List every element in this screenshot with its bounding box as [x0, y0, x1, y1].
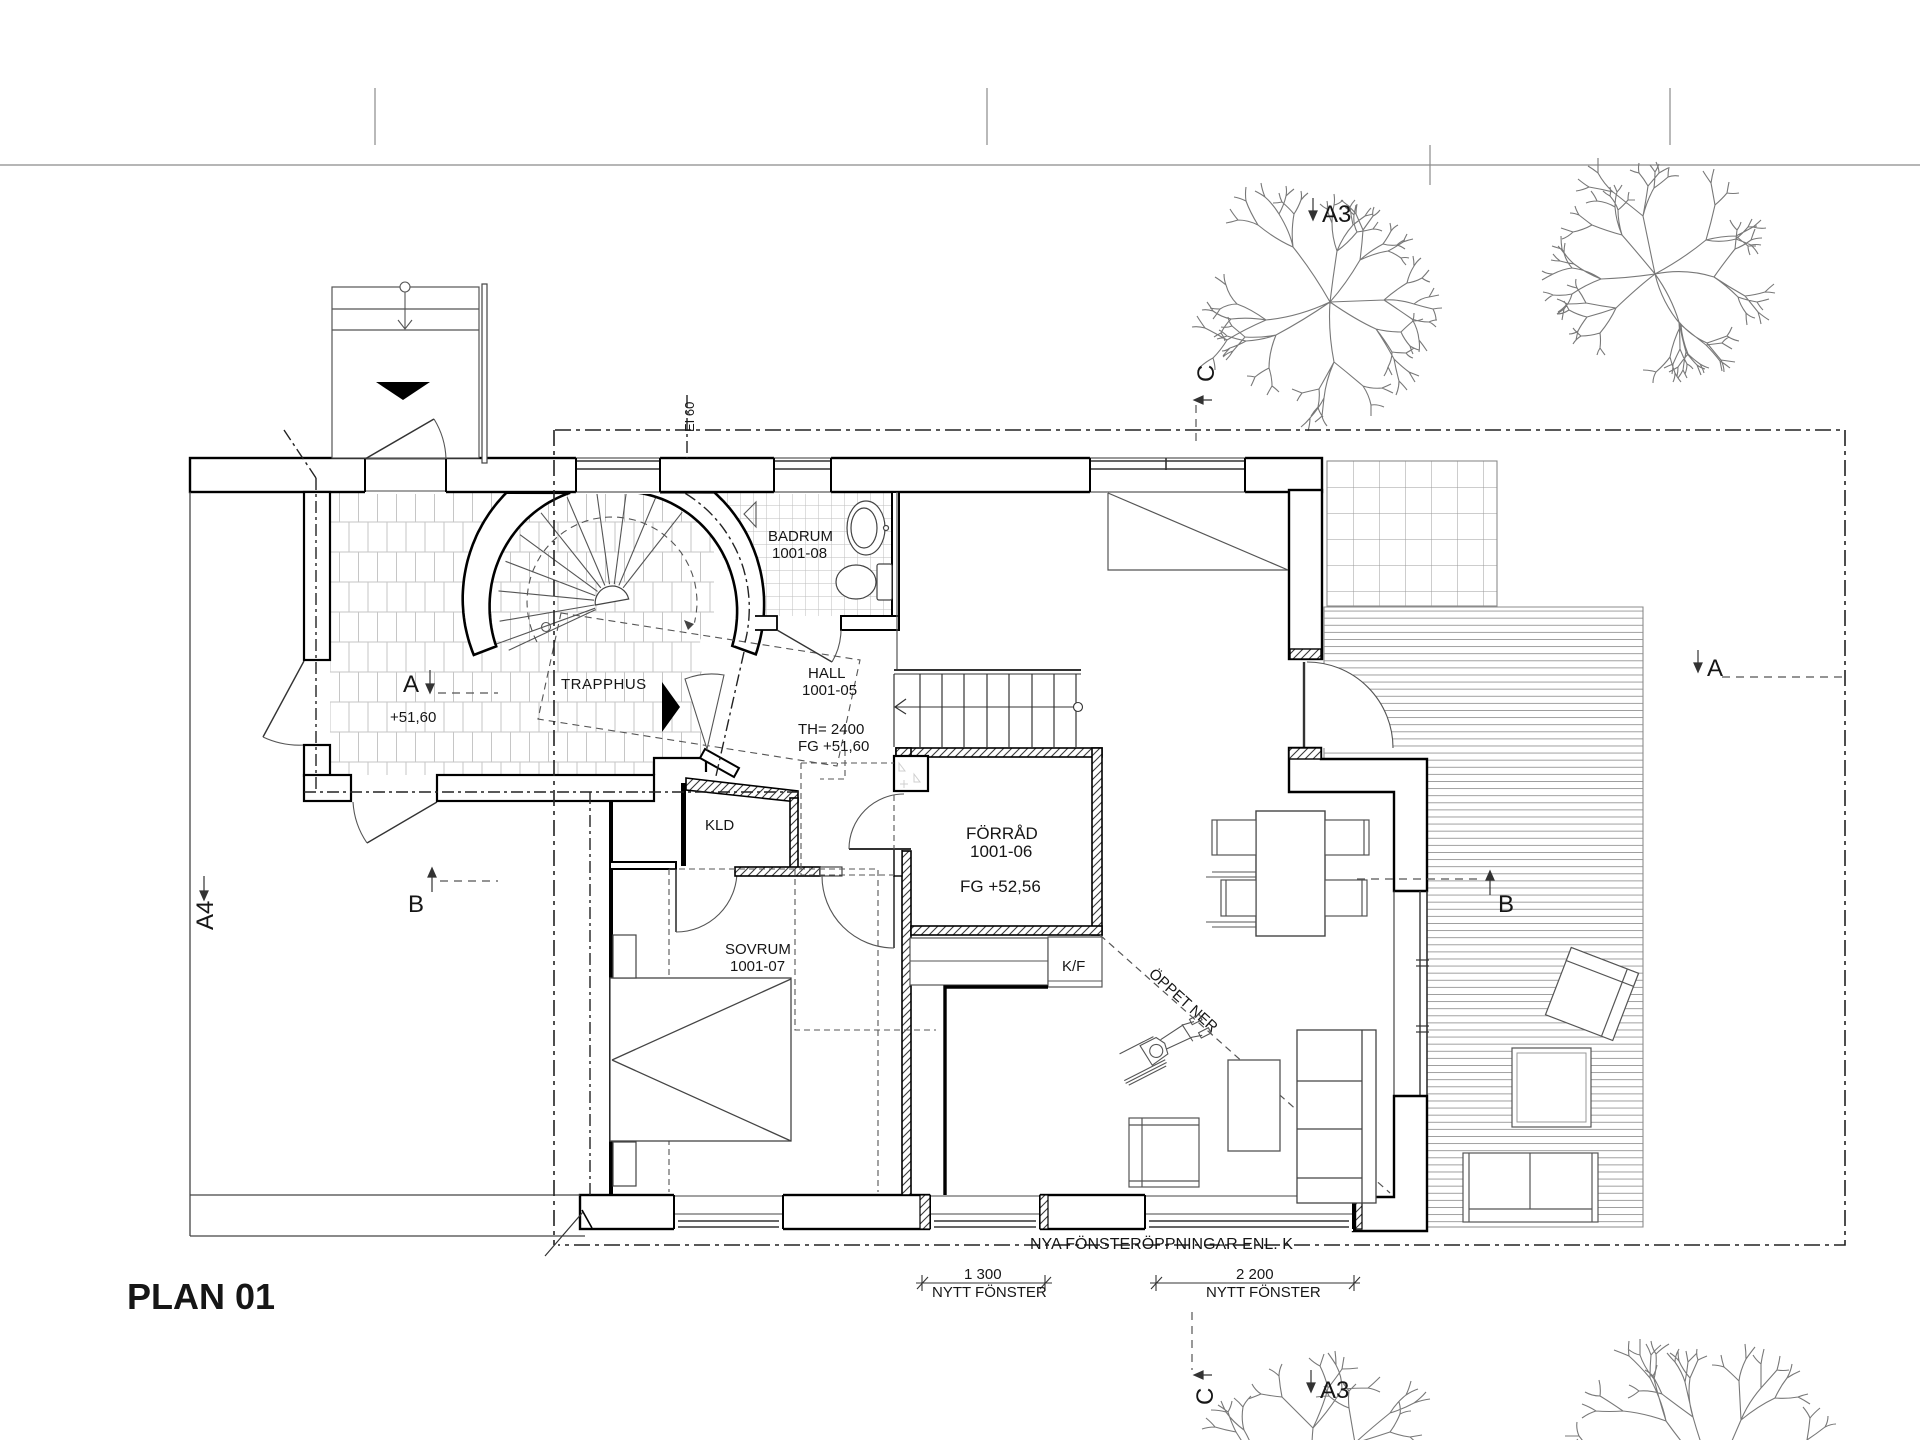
svg-text:A3: A3 [1322, 201, 1351, 228]
svg-text:+51,60: +51,60 [390, 709, 436, 726]
svg-text:1001-06: 1001-06 [970, 842, 1032, 861]
svg-text:K/F: K/F [1062, 958, 1085, 975]
svg-text:FG +51,60: FG +51,60 [798, 738, 869, 755]
svg-text:TH= 2400: TH= 2400 [798, 721, 864, 738]
svg-text:BADRUM: BADRUM [768, 528, 833, 545]
svg-text:A4: A4 [192, 901, 219, 930]
svg-text:1001-05: 1001-05 [802, 682, 857, 699]
svg-text:B: B [1498, 891, 1514, 918]
svg-text:NYTT FÖNSTER: NYTT FÖNSTER [932, 1283, 1047, 1301]
svg-text:1001-08: 1001-08 [772, 545, 827, 562]
svg-text:2 200: 2 200 [1236, 1266, 1274, 1283]
svg-text:PLAN 01: PLAN 01 [127, 1276, 275, 1317]
svg-text:A: A [403, 671, 419, 698]
svg-text:TRAPPHUS: TRAPPHUS [561, 676, 647, 693]
svg-text:SOVRUM: SOVRUM [725, 941, 791, 958]
svg-text:1 300: 1 300 [964, 1266, 1002, 1283]
svg-text:B: B [408, 891, 424, 918]
svg-text:A3: A3 [1320, 1377, 1349, 1404]
svg-text:A: A [1707, 655, 1723, 682]
svg-text:C: C [1193, 365, 1220, 382]
svg-text:NYA FÖNSTERÖPPNINGAR ENL. K: NYA FÖNSTERÖPPNINGAR ENL. K [1030, 1235, 1293, 1253]
svg-text:FÖRRÅD: FÖRRÅD [966, 824, 1038, 843]
svg-text:FG +52,56: FG +52,56 [960, 877, 1041, 896]
svg-text:1001-07: 1001-07 [730, 958, 785, 975]
svg-text:HALL: HALL [808, 665, 846, 682]
svg-text:EI 60: EI 60 [682, 402, 697, 432]
svg-text:NYTT FÖNSTER: NYTT FÖNSTER [1206, 1283, 1321, 1301]
svg-text:KLD: KLD [705, 817, 734, 834]
svg-text:C: C [1192, 1388, 1219, 1405]
